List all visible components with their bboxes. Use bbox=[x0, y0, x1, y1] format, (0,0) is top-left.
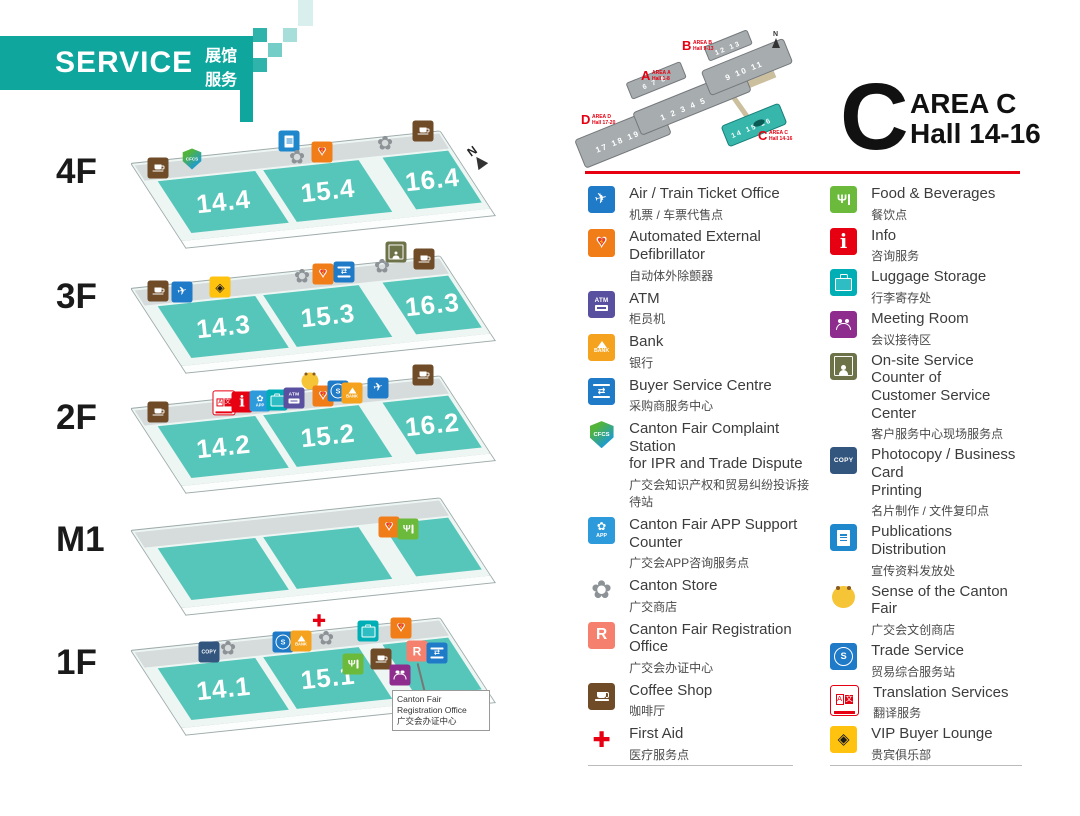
legend-row: STrade Service贸易综合服务站 bbox=[830, 642, 1025, 680]
legend-separator-1 bbox=[588, 765, 793, 766]
store-icon: ✿ bbox=[287, 148, 308, 169]
decorative-square bbox=[253, 28, 267, 42]
bank-icon: BANK bbox=[291, 631, 312, 652]
area-hall-range: Hall 14-16 bbox=[910, 118, 1041, 150]
minimap-label-a-hall: Hall 1-8 bbox=[652, 76, 670, 82]
legend-row: Publications Distribution宣传资料发放处 bbox=[830, 523, 1025, 578]
legend-title: Sense of the Canton Fair bbox=[871, 583, 1025, 618]
legend-subtitle-zh: 宣传资料发放处 bbox=[871, 562, 1025, 579]
area-name: AREA C bbox=[910, 88, 1016, 120]
decorative-square bbox=[298, 0, 313, 26]
legend-row: COPYPhotocopy / Business Card Printing名片… bbox=[830, 446, 1025, 519]
legend-column-1: ✈Air / Train Ticket Office机票 / 车票代售点♥♥⚡A… bbox=[588, 185, 818, 763]
legend-subtitle-zh: 柜员机 bbox=[629, 310, 665, 327]
aed-icon: ♥♥⚡ bbox=[313, 264, 334, 285]
hall-number: 15.4 bbox=[299, 173, 357, 210]
registration-office-callout: Canton Fair Registration Office 广交会办证中心 bbox=[392, 690, 490, 731]
hall-number: 14.4 bbox=[195, 184, 253, 221]
legend-row: Luggage Storage行李寄存处 bbox=[830, 268, 1025, 306]
legend-texts: Trade Service贸易综合服务站 bbox=[871, 642, 964, 680]
legend-title: Publications Distribution bbox=[871, 523, 1025, 558]
luggage-icon bbox=[358, 621, 379, 642]
legend-row: ΨFood & Beverages餐饮点 bbox=[830, 185, 1025, 223]
buyer-icon: ⇄ bbox=[334, 262, 355, 283]
atm-icon: ATM bbox=[588, 291, 615, 318]
legend-subtitle-zh: 医疗服务点 bbox=[629, 746, 689, 763]
legend-title: ATM bbox=[629, 290, 665, 308]
compass-icon: N bbox=[464, 143, 488, 170]
coffee-icon bbox=[588, 683, 615, 710]
vip-icon: ◈ bbox=[210, 277, 231, 298]
aed-icon: ♥♥⚡ bbox=[312, 142, 333, 163]
app-icon: ✿APP bbox=[588, 517, 615, 544]
legend-subtitle-zh: 翻译服务 bbox=[873, 704, 1008, 721]
legend-texts: Publications Distribution宣传资料发放处 bbox=[871, 523, 1025, 578]
legend-texts: ATM柜员机 bbox=[629, 290, 665, 328]
legend-subtitle-zh: 广交商店 bbox=[629, 598, 717, 615]
aed-icon: ♥♥⚡ bbox=[588, 229, 615, 256]
floor-slab-M1 bbox=[130, 497, 492, 609]
legend-subtitle-zh: 广交会办证中心 bbox=[629, 659, 818, 676]
legend-row: Meeting Room会议接待区 bbox=[830, 310, 1025, 348]
legend-subtitle-zh: 名片制作 / 文件复印点 bbox=[871, 502, 1025, 519]
store-icon: ✿ bbox=[292, 267, 313, 288]
aed-icon: ♥♥⚡ bbox=[391, 618, 412, 639]
legend-title: Canton Fair APP Support Counter bbox=[629, 516, 818, 551]
air-icon: ✈ bbox=[588, 186, 615, 213]
hall-number: 15.2 bbox=[299, 418, 357, 455]
legend-title: Canton Fair Registration Office bbox=[629, 621, 818, 656]
service-title: SERVICE bbox=[55, 46, 193, 80]
legend-separator-2 bbox=[830, 765, 1022, 766]
overview-minimap: 17 18 19 20 6 7 8 1 2 3 4 5 12 13 9 10 1… bbox=[575, 22, 845, 174]
legend-subtitle-zh: 咖啡厅 bbox=[629, 702, 712, 719]
legend-subtitle-zh: 会议接待区 bbox=[871, 331, 969, 348]
legend-title: VIP Buyer Lounge bbox=[871, 725, 992, 743]
floor-label-1F: 1F bbox=[56, 643, 97, 683]
reg-icon: R bbox=[588, 622, 615, 649]
floor-label-M1: M1 bbox=[56, 520, 105, 560]
legend-texts: Info咨询服务 bbox=[871, 227, 919, 265]
store-icon: ✿ bbox=[316, 629, 337, 650]
minimap-label-c-hall: Hall 14-16 bbox=[769, 136, 793, 142]
legend-subtitle-zh: 贸易综合服务站 bbox=[871, 663, 964, 680]
legend-title: Coffee Shop bbox=[629, 682, 712, 700]
store-icon: ✿ bbox=[218, 639, 239, 660]
legend-title: On-site Service Counter of Customer Serv… bbox=[871, 352, 1025, 423]
minimap-label-a-letter: A bbox=[641, 68, 651, 83]
minimap-label-d-letter: D bbox=[581, 112, 590, 127]
legend-title: Air / Train Ticket Office bbox=[629, 185, 780, 203]
info-icon: i bbox=[830, 228, 857, 255]
meeting-icon bbox=[390, 665, 411, 686]
legend-row: ⇄Buyer Service Centre采购商服务中心 bbox=[588, 377, 818, 415]
legend-subtitle-zh: 广交会知识产权和贸易纠纷投诉接待站 bbox=[629, 476, 818, 510]
legend-texts: First Aid医疗服务点 bbox=[629, 725, 689, 763]
hall-number: 16.2 bbox=[403, 407, 461, 444]
bank-icon: BANK bbox=[342, 383, 363, 404]
legend-row: ♥♥⚡Automated External Defibrillator自动体外除… bbox=[588, 228, 818, 283]
minimap-north-label: N bbox=[773, 31, 778, 38]
minimap-label-b-hall: Hall 9-13 bbox=[693, 46, 714, 52]
legend-subtitle-zh: 行李寄存处 bbox=[871, 289, 986, 306]
firstaid-icon: ✚ bbox=[588, 726, 615, 753]
legend-texts: Sense of the Canton Fair广交会文创商店 bbox=[871, 583, 1025, 638]
legend-texts: Automated External Defibrillator自动体外除颤器 bbox=[629, 228, 818, 283]
legend-subtitle-zh: 客户服务中心现场服务点 bbox=[871, 425, 1025, 442]
legend-title: Photocopy / Business Card Printing bbox=[871, 446, 1025, 499]
legend-subtitle-zh: 自动体外除颤器 bbox=[629, 267, 818, 284]
legend-subtitle-zh: 广交会文创商店 bbox=[871, 621, 1025, 638]
legend-texts: Food & Beverages餐饮点 bbox=[871, 185, 995, 223]
legend-texts: Meeting Room会议接待区 bbox=[871, 310, 969, 348]
coffee-icon bbox=[148, 281, 169, 302]
callout-line-2: Registration Office bbox=[397, 705, 485, 716]
title-divider bbox=[585, 171, 1020, 174]
cfcs-icon: CFCS bbox=[182, 149, 203, 170]
legend-texts: Photocopy / Business Card Printing名片制作 /… bbox=[871, 446, 1025, 519]
bank-icon: BANK bbox=[588, 334, 615, 361]
legend-title: Trade Service bbox=[871, 642, 964, 660]
legend-row: Coffee Shop咖啡厅 bbox=[588, 682, 818, 720]
air-icon: ✈ bbox=[368, 378, 389, 399]
callout-line-3: 广交会办证中心 bbox=[397, 716, 485, 727]
legend-title: First Aid bbox=[629, 725, 689, 743]
food-icon: Ψ bbox=[343, 654, 364, 675]
legend-row: iInfo咨询服务 bbox=[830, 227, 1025, 265]
legend-texts: Bank银行 bbox=[629, 333, 663, 371]
legend-texts: Luggage Storage行李寄存处 bbox=[871, 268, 986, 306]
legend-subtitle-zh: 贵宾俱乐部 bbox=[871, 746, 992, 763]
legend-row: ✿Canton Store广交商店 bbox=[588, 577, 818, 615]
floor-label-2F: 2F bbox=[56, 398, 97, 438]
hall-number: 14.3 bbox=[195, 309, 253, 346]
legend-row: RCanton Fair Registration Office广交会办证中心 bbox=[588, 621, 818, 676]
decorative-square bbox=[283, 28, 297, 42]
legend-texts: Canton Fair Registration Office广交会办证中心 bbox=[629, 621, 818, 676]
legend-title: Canton Store bbox=[629, 577, 717, 595]
sense-icon bbox=[830, 584, 857, 611]
buyer-icon: ⇄ bbox=[427, 643, 448, 664]
legend-title: Automated External Defibrillator bbox=[629, 228, 818, 263]
legend-subtitle-zh: 咨询服务 bbox=[871, 247, 919, 264]
legend-row: BANKBank银行 bbox=[588, 333, 818, 371]
legend-texts: Canton Fair Complaint Station for IPR an… bbox=[629, 420, 818, 510]
trade-icon: S bbox=[830, 643, 857, 670]
store-icon: ✿ bbox=[588, 578, 615, 605]
hall-number: 14.1 bbox=[195, 671, 253, 708]
legend-subtitle-zh: 采购商服务中心 bbox=[629, 397, 772, 414]
legend-texts: Translation Services翻译服务 bbox=[873, 684, 1008, 722]
store-icon: ✿ bbox=[375, 134, 396, 155]
coffee-icon bbox=[413, 365, 434, 386]
buyer-icon: ⇄ bbox=[588, 378, 615, 405]
food-icon: Ψ bbox=[398, 519, 419, 540]
legend-row: ATMATM柜员机 bbox=[588, 290, 818, 328]
legend-row: ✚First Aid医疗服务点 bbox=[588, 725, 818, 763]
copy-icon: COPY bbox=[199, 642, 220, 663]
floor-label-3F: 3F bbox=[56, 277, 97, 317]
coffee-icon bbox=[148, 158, 169, 179]
legend-subtitle-zh: 银行 bbox=[629, 354, 663, 371]
onsite-icon bbox=[386, 242, 407, 263]
legend-subtitle-zh: 广交会APP咨询服务点 bbox=[629, 554, 818, 571]
legend-texts: Canton Fair APP Support Counter广交会APP咨询服… bbox=[629, 516, 818, 571]
legend-row: Sense of the Canton Fair广交会文创商店 bbox=[830, 583, 1025, 638]
minimap-label-d-hall: Hall 17-20 bbox=[592, 120, 616, 126]
coffee-icon bbox=[414, 249, 435, 270]
reg-icon: R bbox=[407, 641, 428, 662]
legend-title: Food & Beverages bbox=[871, 185, 995, 203]
legend-row: ◈VIP Buyer Lounge贵宾俱乐部 bbox=[830, 725, 1025, 763]
page: SERVICE 展馆服务 17 18 19 20 6 7 8 1 2 3 4 5… bbox=[0, 0, 1080, 816]
legend-column-2: ΨFood & Beverages餐饮点iInfo咨询服务Luggage Sto… bbox=[830, 185, 1025, 763]
legend-title: Meeting Room bbox=[871, 310, 969, 328]
decorative-square bbox=[240, 90, 253, 122]
minimap-label-b-letter: B bbox=[682, 38, 691, 53]
legend-texts: On-site Service Counter of Customer Serv… bbox=[871, 352, 1025, 443]
legend-texts: Buyer Service Centre采购商服务中心 bbox=[629, 377, 772, 415]
legend-subtitle-zh: 机票 / 车票代售点 bbox=[629, 206, 780, 223]
aed-icon: ♥♥⚡ bbox=[379, 517, 400, 538]
legend-texts: VIP Buyer Lounge贵宾俱乐部 bbox=[871, 725, 992, 763]
legend-title: Canton Fair Complaint Station for IPR an… bbox=[629, 420, 818, 473]
vip-icon: ◈ bbox=[830, 726, 857, 753]
hall-number: 15.3 bbox=[299, 298, 357, 335]
callout-line-1: Canton Fair bbox=[397, 694, 485, 705]
legend-title: Buyer Service Centre bbox=[629, 377, 772, 395]
floor-slab-2F: 14.215.216.2 bbox=[130, 375, 492, 487]
legend-title: Translation Services bbox=[873, 684, 1008, 702]
copy-icon: COPY bbox=[830, 447, 857, 474]
legend-row: CFCSCanton Fair Complaint Station for IP… bbox=[588, 420, 818, 510]
food-icon: Ψ bbox=[830, 186, 857, 213]
hall-number: 14.2 bbox=[195, 429, 253, 466]
legend-row: ✈Air / Train Ticket Office机票 / 车票代售点 bbox=[588, 185, 818, 223]
decorative-square bbox=[268, 43, 282, 57]
coffee-icon bbox=[371, 649, 392, 670]
legend-subtitle-zh: 餐饮点 bbox=[871, 206, 995, 223]
luggage-icon bbox=[830, 269, 857, 296]
translate-icon: A文 bbox=[830, 685, 859, 717]
legend-texts: Coffee Shop咖啡厅 bbox=[629, 682, 712, 720]
hall-number: 16.3 bbox=[403, 287, 461, 324]
hall-number: 16.4 bbox=[403, 162, 461, 199]
legend-title: Luggage Storage bbox=[871, 268, 986, 286]
cfcs-icon: CFCS bbox=[588, 421, 615, 448]
service-subtitle-zh: 展馆服务 bbox=[205, 42, 253, 90]
legend-title: Info bbox=[871, 227, 919, 245]
floor-label-4F: 4F bbox=[56, 152, 97, 192]
legend-row: On-site Service Counter of Customer Serv… bbox=[830, 352, 1025, 443]
legend-row: A文Translation Services翻译服务 bbox=[830, 684, 1025, 722]
coffee-icon bbox=[148, 402, 169, 423]
legend-texts: Canton Store广交商店 bbox=[629, 577, 717, 615]
air-icon: ✈ bbox=[172, 282, 193, 303]
meeting-icon bbox=[830, 311, 857, 338]
pub-icon bbox=[830, 524, 857, 551]
legend-title: Bank bbox=[629, 333, 663, 351]
decorative-square bbox=[253, 58, 267, 72]
coffee-icon bbox=[413, 121, 434, 142]
header-banner: SERVICE 展馆服务 bbox=[0, 36, 253, 90]
legend-row: ✿APPCanton Fair APP Support Counter广交会AP… bbox=[588, 516, 818, 571]
minimap-label-c-letter: C bbox=[758, 128, 768, 143]
onsite-icon bbox=[830, 353, 857, 380]
legend-texts: Air / Train Ticket Office机票 / 车票代售点 bbox=[629, 185, 780, 223]
area-letter: C bbox=[840, 70, 909, 165]
